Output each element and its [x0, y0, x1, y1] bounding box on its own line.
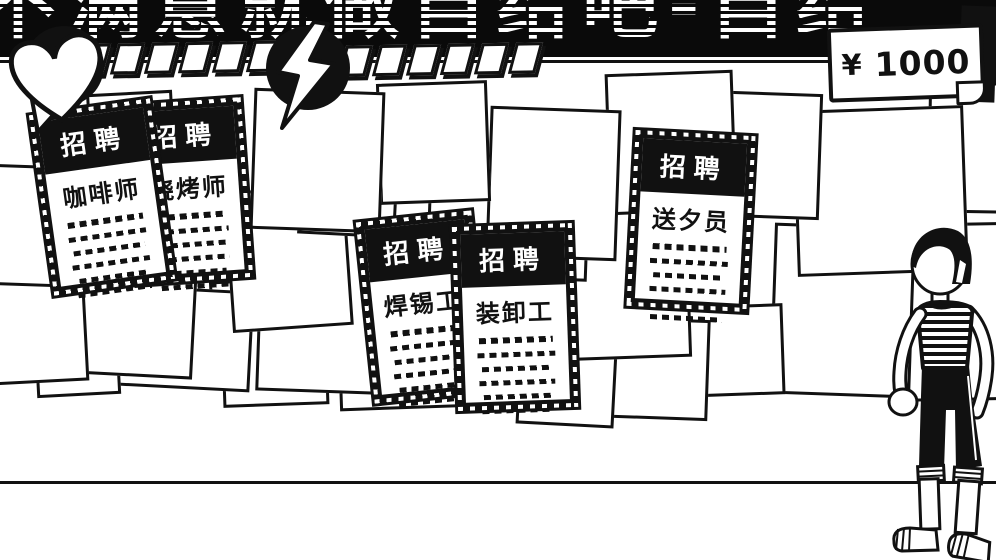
dashed-text-line — [73, 241, 145, 256]
dashed-text-line — [478, 351, 555, 359]
dashed-text-line — [650, 314, 722, 323]
dashed-text-line — [479, 336, 553, 345]
blank-paper — [376, 80, 491, 205]
left-leg — [919, 479, 940, 530]
bar-segment — [406, 44, 441, 76]
health-badge — [0, 16, 118, 134]
dashed-text-line — [67, 213, 143, 229]
poster-title: 装卸工 — [462, 291, 567, 330]
poster-text-lines — [633, 233, 742, 336]
money-amount: 1000 — [874, 41, 971, 83]
energy-badge — [252, 16, 368, 134]
player-character — [856, 220, 996, 560]
dashed-text-line — [484, 393, 551, 400]
game-scene-job-board: 不满意就做自给吧-自给 招聘 烧烤师 招聘 咖啡师 招聘 焊锡工 招聘 装卸工 — [0, 0, 996, 560]
character-drawing — [856, 220, 996, 560]
poster-body: 招聘 装卸工 — [460, 231, 570, 403]
dashed-text-line — [482, 407, 554, 415]
bar-segment — [178, 42, 213, 74]
dashed-text-line — [79, 269, 148, 284]
dashed-text-line — [480, 379, 556, 387]
right-slipper — [947, 531, 993, 560]
dashed-text-line — [653, 272, 724, 281]
poster-body: 招聘 咖啡师 — [38, 107, 166, 286]
lightning-icon — [252, 16, 368, 134]
poster-delivery[interactable]: 招聘 送夕员 — [623, 127, 758, 315]
bar-segment — [508, 42, 543, 74]
dashed-text-line — [650, 286, 726, 295]
fist — [889, 389, 917, 415]
dashed-text-line — [161, 281, 230, 291]
sidewalk-line — [0, 481, 996, 484]
heart-icon — [0, 16, 118, 134]
dashed-text-line — [650, 258, 727, 267]
dashed-text-line — [653, 243, 727, 253]
dashed-text-line — [395, 353, 462, 365]
poster-title: 送夕员 — [638, 198, 744, 238]
bar-segment — [474, 43, 509, 75]
poster-loader[interactable]: 招聘 装卸工 — [449, 220, 582, 414]
dashed-text-line — [481, 365, 552, 372]
dashed-text-line — [78, 283, 152, 298]
poster-header: 招聘 — [640, 138, 747, 196]
dashed-text-line — [653, 300, 720, 309]
bar-segment — [440, 43, 475, 75]
poster-body: 招聘 送夕员 — [635, 138, 747, 303]
energy-bar — [342, 42, 540, 76]
bar-segment — [372, 45, 407, 77]
money-display: ¥ 1000 — [827, 23, 985, 102]
poster-header: 招聘 — [460, 231, 566, 288]
right-leg — [955, 480, 980, 533]
poster-text-lines — [463, 326, 570, 428]
dashed-text-line — [73, 255, 150, 271]
dashed-text-line — [68, 227, 147, 243]
currency-symbol: ¥ — [841, 48, 862, 83]
dashed-text-line — [390, 324, 460, 337]
poster-text-lines — [51, 202, 170, 314]
bar-segment — [212, 41, 247, 73]
bar-segment — [144, 42, 179, 74]
left-slipper — [894, 528, 938, 551]
